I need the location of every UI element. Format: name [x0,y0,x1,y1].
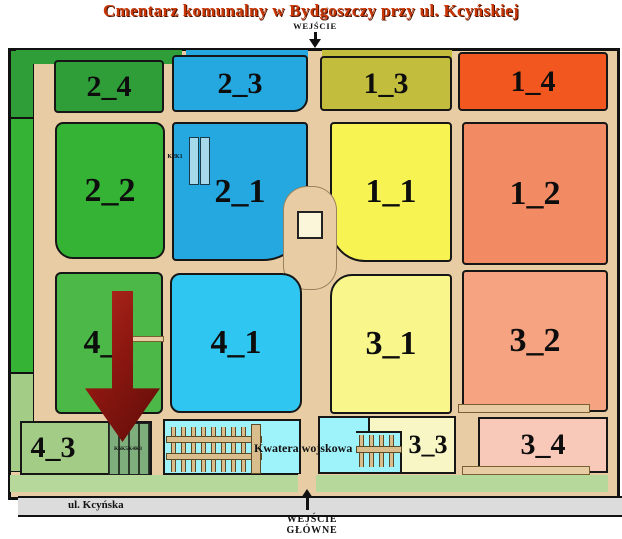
section-3_2: 3_2 [462,270,608,412]
section-4_1: 4_1 [170,273,302,413]
street-label: ul. Kcyńska [68,499,124,511]
section-2_3: 2_3 [172,55,308,112]
entrance-down-arrow-icon [309,32,321,48]
section-2_4: 2_4 [54,60,164,113]
main-entrance-up-arrow-icon [301,489,313,511]
military-graves-grid [171,427,253,472]
section-2_2: 2_2 [55,122,165,259]
page-title: Cmentarz komunalny w Bydgoszczy przy ul.… [0,1,622,21]
path-bar [458,404,590,413]
path-notch [128,336,164,342]
section-1_4: 1_4 [458,52,608,111]
entrance-top-label: WEJŚCIE [265,21,365,31]
section-1_3: 1_3 [320,56,452,111]
path-bar [462,466,590,475]
k6k5k4k3-label: K6K5K4K3 [105,446,151,452]
chapel-building [297,211,323,239]
section-3_1: 3_1 [330,274,452,414]
military-grid-bar [166,436,262,443]
section-1_1: 1_1 [330,122,452,262]
k2k1-label: K2K1 [158,154,192,160]
military-grid-bar [166,453,262,460]
columbarium-k2k1-bar [200,137,210,185]
section-1_2: 1_2 [462,122,608,265]
columbarium-k2k1-bar [189,137,199,185]
military-quarter-label: Kwatera wojskowa [254,441,366,456]
section-3_4: 3_4 [478,417,608,473]
cemetery-map-page: Cmentarz komunalny w Bydgoszczy przy ul.… [0,0,622,539]
map-edge-strip [10,118,34,373]
main-entrance-label: WEJŚCIE GŁÓWNE [262,514,362,536]
